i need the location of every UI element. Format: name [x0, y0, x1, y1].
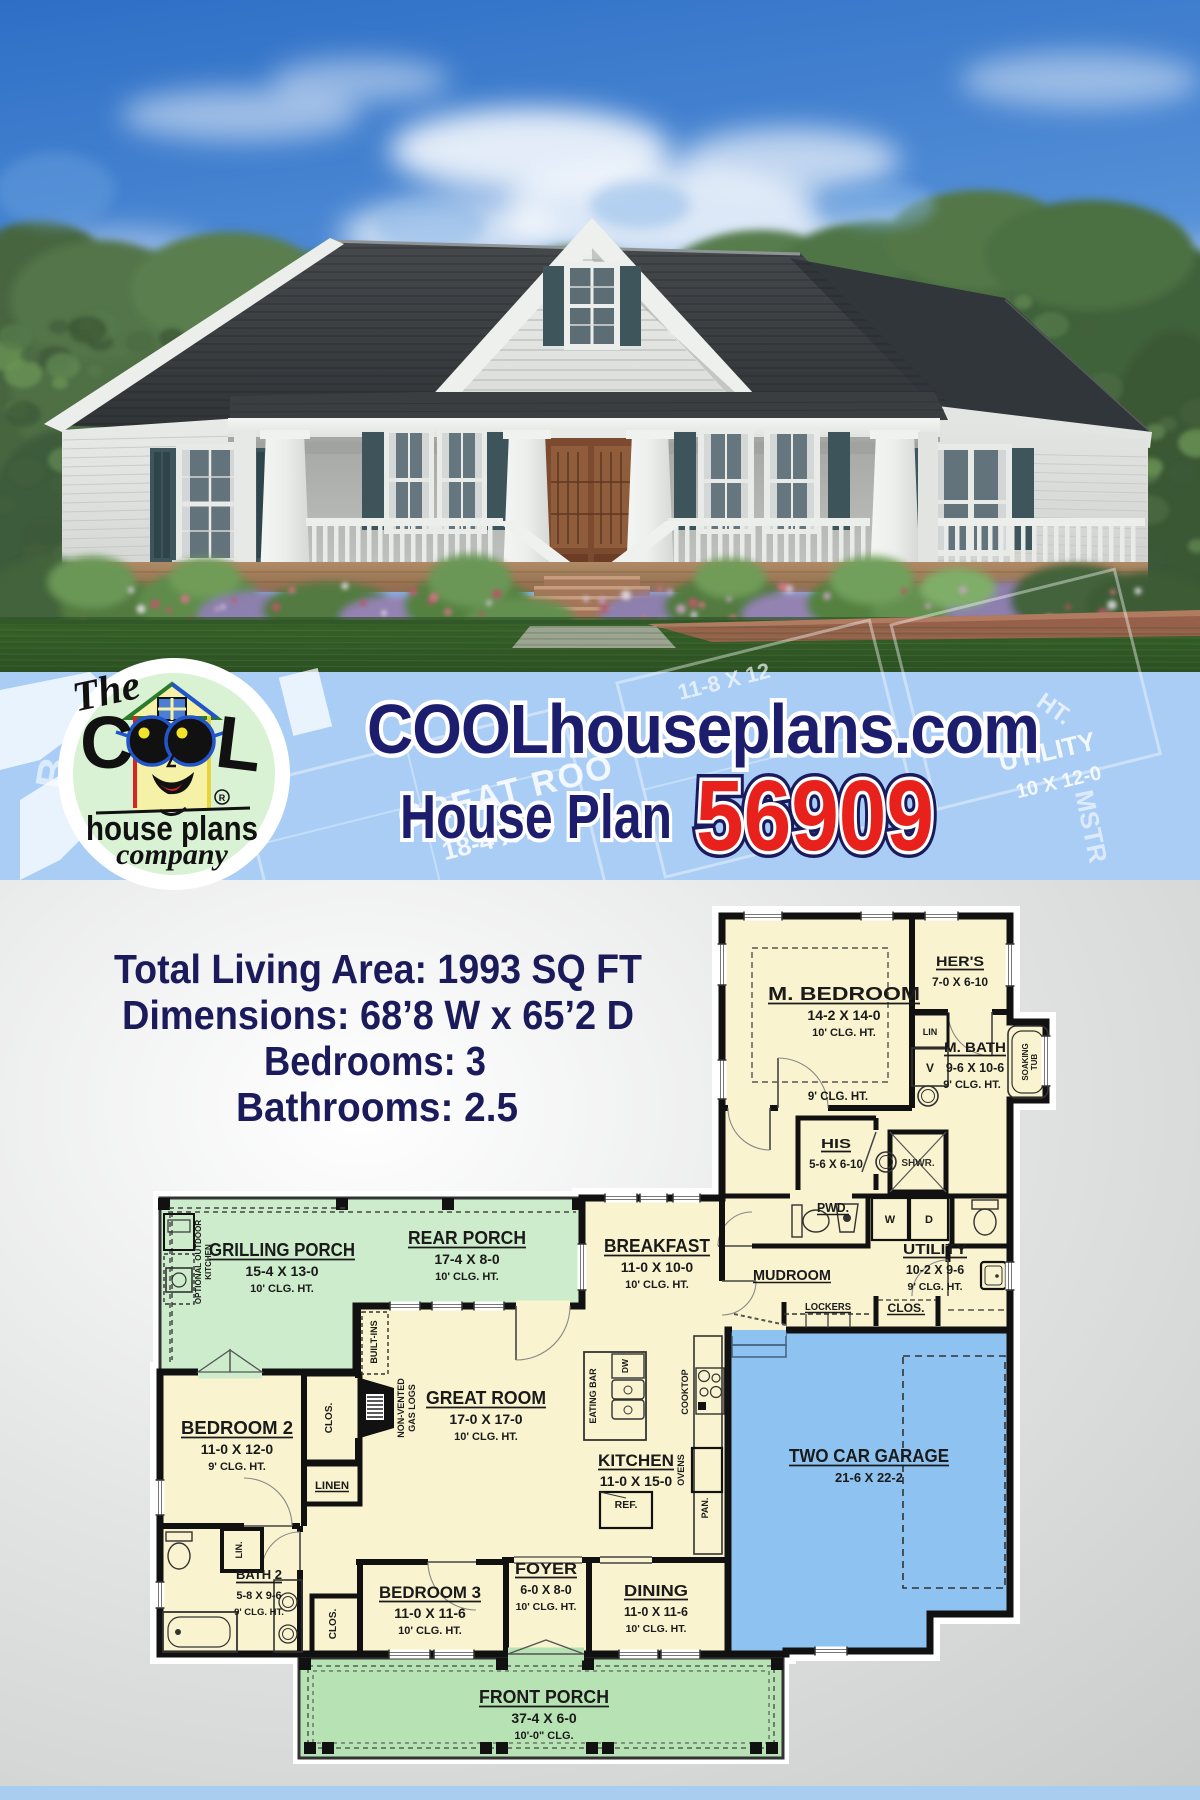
svg-text:LIN.: LIN.: [234, 1542, 244, 1559]
svg-text:DINING: DINING: [624, 1583, 688, 1600]
svg-text:56909: 56909: [696, 760, 934, 872]
svg-text:9-6 X 10-6: 9-6 X 10-6: [946, 1061, 1004, 1075]
svg-text:NON-VENTED: NON-VENTED: [396, 1378, 406, 1438]
svg-text:9' CLG. HT.: 9' CLG. HT.: [234, 1607, 284, 1618]
svg-text:17-4 X 8-0: 17-4 X 8-0: [434, 1251, 500, 1267]
svg-text:KITCHEN: KITCHEN: [598, 1451, 674, 1470]
svg-text:10'-0" CLG.: 10'-0" CLG.: [514, 1730, 573, 1742]
svg-text:OVENS: OVENS: [676, 1454, 686, 1486]
svg-text:BATH 2: BATH 2: [236, 1567, 282, 1582]
svg-text:PWD.: PWD.: [817, 1200, 849, 1215]
svg-text:CLOS.: CLOS.: [888, 1301, 925, 1315]
svg-text:CLOS.: CLOS.: [328, 1609, 339, 1640]
svg-text:HER'S: HER'S: [936, 953, 984, 969]
svg-text:11-0 X 12-0: 11-0 X 12-0: [201, 1441, 274, 1457]
svg-text:10' CLG. HT.: 10' CLG. HT.: [435, 1271, 499, 1283]
svg-text:R: R: [219, 793, 226, 803]
svg-text:MUDROOM: MUDROOM: [753, 1267, 831, 1284]
svg-text:BUILT-INS: BUILT-INS: [369, 1320, 379, 1363]
svg-text:11-0 X 11-6: 11-0 X 11-6: [394, 1605, 466, 1621]
svg-text:9' CLG. HT.: 9' CLG. HT.: [808, 1091, 868, 1103]
svg-text:REAR PORCH: REAR PORCH: [408, 1228, 526, 1248]
svg-text:OPTIONAL OUTDOOR: OPTIONAL OUTDOOR: [194, 1220, 203, 1305]
svg-text:COOLhouseplans.com: COOLhouseplans.com: [367, 690, 1039, 768]
svg-text:PAN.: PAN.: [700, 1498, 710, 1519]
svg-text:5-6 X 6-10: 5-6 X 6-10: [809, 1159, 863, 1171]
svg-text:company: company: [116, 838, 228, 871]
svg-text:17-0 X 17-0: 17-0 X 17-0: [449, 1411, 522, 1427]
svg-text:GAS LOGS: GAS LOGS: [407, 1384, 417, 1432]
svg-text:9' CLG. HT.: 9' CLG. HT.: [907, 1281, 962, 1293]
svg-text:6-0 X 8-0: 6-0 X 8-0: [520, 1583, 571, 1597]
svg-text:14-2 X 14-0: 14-2 X 14-0: [807, 1007, 880, 1023]
svg-text:Dimensions: 68’8 W x 65’2 D: Dimensions: 68’8 W x 65’2 D: [122, 992, 634, 1038]
svg-text:C: C: [80, 701, 133, 784]
svg-text:10-2 X 9-6: 10-2 X 9-6: [906, 1263, 964, 1277]
svg-text:SHWR.: SHWR.: [901, 1158, 935, 1169]
svg-text:37-4 X 6-0: 37-4 X 6-0: [511, 1710, 577, 1726]
svg-text:11-0 X 11-6: 11-0 X 11-6: [624, 1605, 688, 1619]
svg-text:TWO CAR GARAGE: TWO CAR GARAGE: [789, 1446, 949, 1466]
svg-text:Total Living Area: 1993 SQ FT: Total Living Area: 1993 SQ FT: [114, 946, 642, 992]
svg-text:LINEN: LINEN: [315, 1480, 349, 1492]
svg-text:10' CLG. HT.: 10' CLG. HT.: [626, 1623, 687, 1635]
svg-text:LIN: LIN: [923, 1027, 938, 1037]
svg-text:BREAKFAST: BREAKFAST: [604, 1236, 710, 1256]
svg-text:21-6 X 22-2: 21-6 X 22-2: [835, 1470, 903, 1485]
svg-text:10' CLG. HT.: 10' CLG. HT.: [812, 1027, 876, 1039]
svg-text:10' CLG. HT.: 10' CLG. HT.: [454, 1431, 518, 1443]
svg-text:UTILITY: UTILITY: [903, 1241, 967, 1258]
svg-text:Bathrooms: 2.5: Bathrooms: 2.5: [236, 1084, 518, 1130]
svg-text:FRONT PORCH: FRONT PORCH: [479, 1687, 609, 1707]
svg-text:10' CLG. HT.: 10' CLG. HT.: [398, 1625, 462, 1637]
svg-text:9' CLG. HT.: 9' CLG. HT.: [943, 1079, 1001, 1091]
svg-text:EATING BAR: EATING BAR: [588, 1368, 598, 1424]
svg-text:M. BEDROOM: M. BEDROOM: [768, 984, 920, 1004]
svg-text:REF.: REF.: [615, 1499, 638, 1511]
svg-text:10' CLG. HT.: 10' CLG. HT.: [625, 1279, 689, 1291]
svg-text:W: W: [885, 1214, 896, 1226]
svg-text:COOKTOP: COOKTOP: [680, 1369, 690, 1414]
svg-text:7-0 X 6-10: 7-0 X 6-10: [932, 975, 988, 989]
svg-text:SOAKING: SOAKING: [1021, 1043, 1030, 1080]
svg-text:GREAT ROOM: GREAT ROOM: [426, 1388, 546, 1408]
svg-text:CLOS.: CLOS.: [324, 1403, 335, 1434]
svg-text:BEDROOM 2: BEDROOM 2: [181, 1418, 293, 1438]
svg-text:Bedrooms: 3: Bedrooms: 3: [264, 1038, 486, 1084]
svg-text:TUB: TUB: [1030, 1054, 1039, 1071]
svg-text:15-4 X 13-0: 15-4 X 13-0: [245, 1263, 318, 1279]
svg-text:11-0 X 15-0: 11-0 X 15-0: [600, 1473, 673, 1489]
svg-text:DW: DW: [620, 1358, 630, 1373]
svg-text:10' CLG. HT.: 10' CLG. HT.: [516, 1601, 577, 1613]
svg-text:10' CLG. HT.: 10' CLG. HT.: [250, 1283, 314, 1295]
svg-text:LOCKERS: LOCKERS: [805, 1301, 851, 1313]
svg-text:9' CLG. HT.: 9' CLG. HT.: [208, 1461, 266, 1473]
svg-text:HIS: HIS: [821, 1136, 851, 1151]
svg-text:BEDROOM 3: BEDROOM 3: [379, 1583, 481, 1602]
svg-text:D: D: [925, 1214, 933, 1226]
svg-text:11-0 X 10-0: 11-0 X 10-0: [621, 1259, 694, 1275]
svg-text:House Plan: House Plan: [400, 783, 672, 852]
svg-text:5-8 X 9-6: 5-8 X 9-6: [236, 1590, 281, 1602]
svg-text:V: V: [926, 1061, 934, 1075]
svg-text:FOYER: FOYER: [515, 1561, 577, 1578]
svg-text:GRILLING PORCH: GRILLING PORCH: [209, 1240, 355, 1260]
svg-text:M. BATH: M. BATH: [944, 1039, 1006, 1055]
